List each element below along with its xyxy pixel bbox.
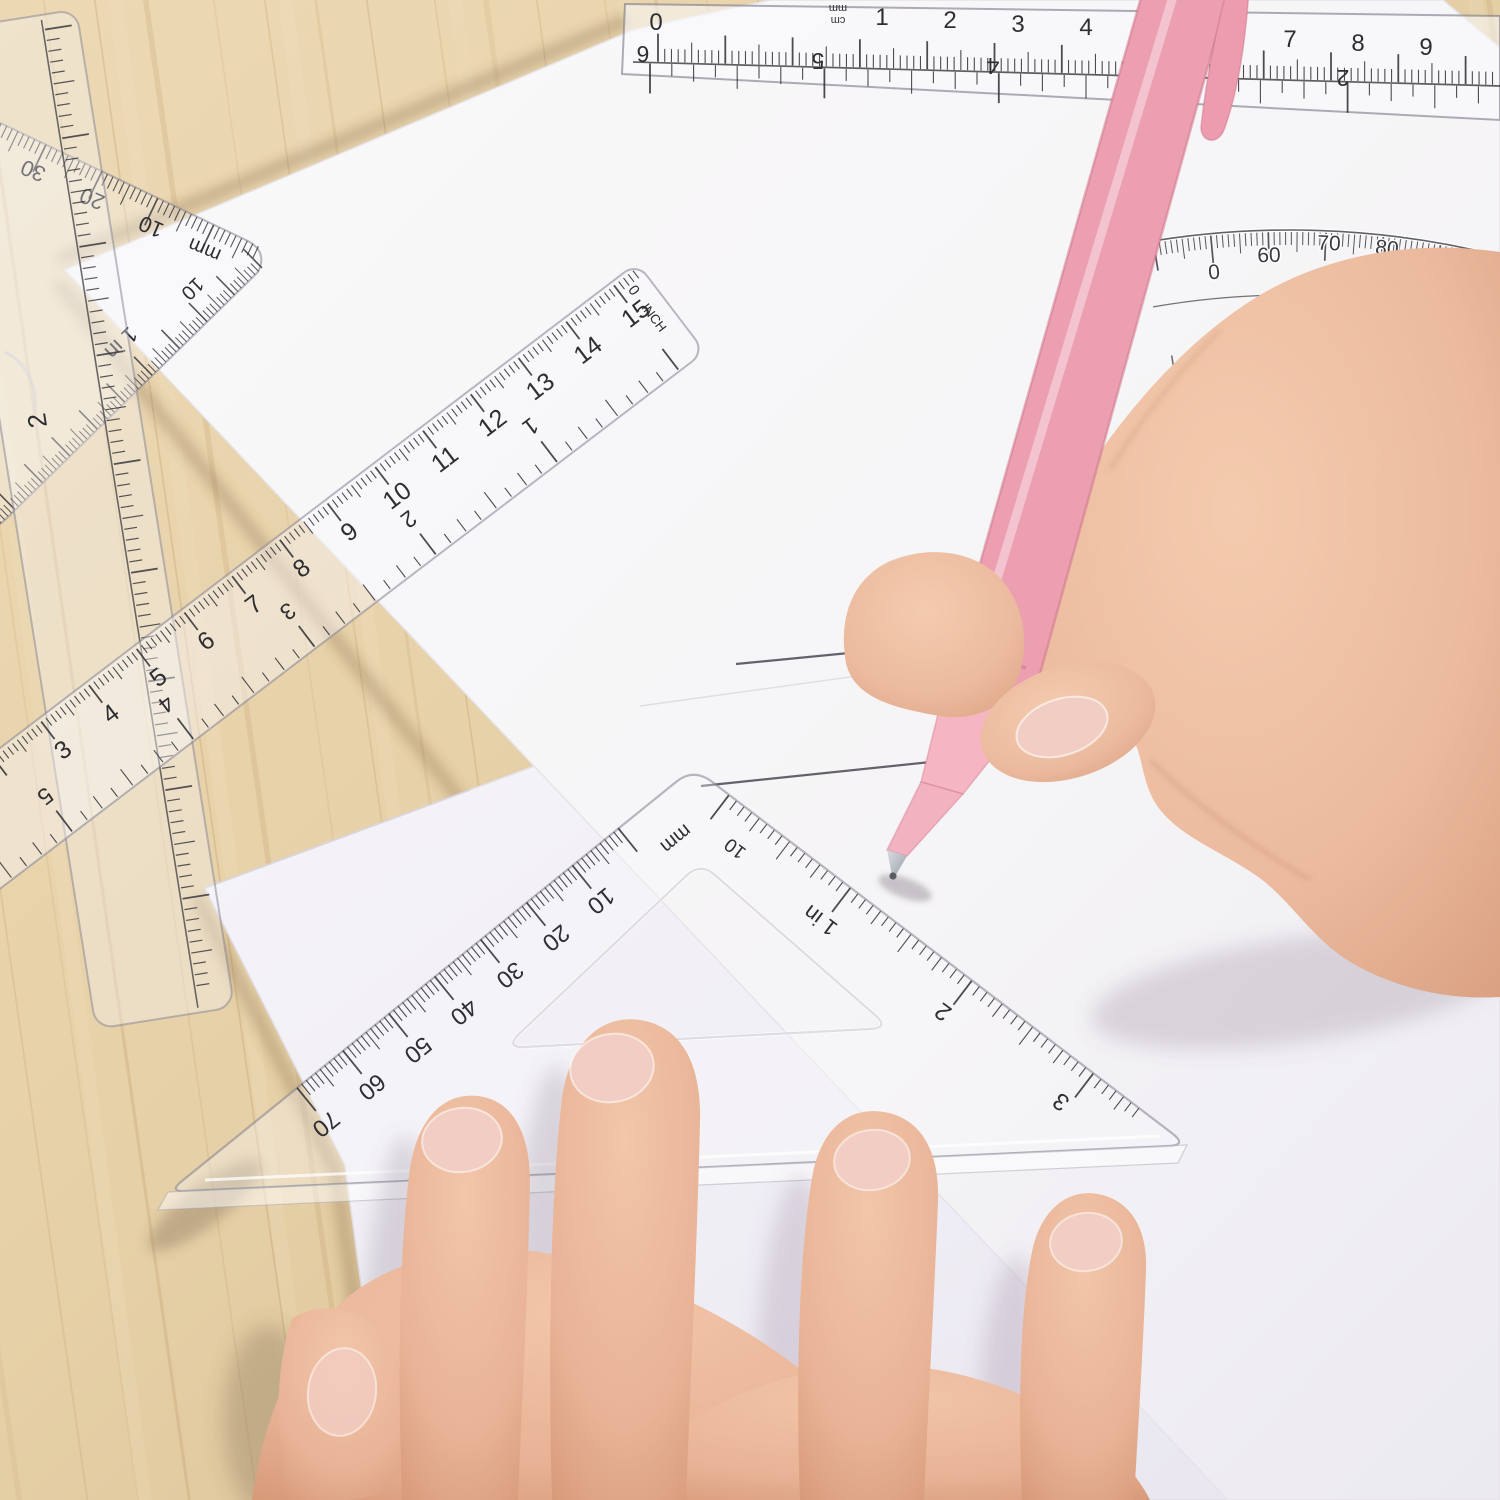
top-ruler-unit-label: mm: [829, 2, 847, 14]
top-ruler-cm-label: 7: [1283, 26, 1296, 53]
protractor-rim-tick: [1251, 233, 1252, 246]
protractor-rim-tick: [1245, 233, 1246, 246]
top-ruler-unit-label: cm: [831, 14, 846, 26]
top-ruler-cm-label: 4: [1079, 14, 1092, 41]
top-ruler-inch-label: 5: [812, 48, 825, 74]
right-thumb: [844, 552, 1024, 717]
top-ruler-cm-label: 8: [1351, 30, 1364, 57]
protractor-outer-label: 0: [1207, 261, 1221, 285]
top-ruler-cm-label: 2: [943, 7, 956, 34]
top-ruler-inch-label: 2: [1337, 65, 1350, 91]
top-ruler-cm-label: 3: [1011, 11, 1024, 38]
drafting-tools-photo: 30 20 10 mm 10 1 in 2 3 4 5 6 7 8 9 10 1…: [0, 0, 1500, 1500]
protractor-outer-label: 70: [1317, 232, 1341, 256]
top-ruler-cm-label: 0: [649, 9, 662, 36]
protractor-outer-label: 60: [1257, 244, 1281, 268]
top-ruler-cm-label: 9: [1419, 34, 1432, 61]
top-ruler-inch-label: 4: [986, 53, 999, 79]
top-ruler-inch-label: 6: [637, 41, 650, 67]
top-ruler-cm-label: 1: [875, 4, 888, 31]
pen-ballpoint: [889, 872, 896, 879]
